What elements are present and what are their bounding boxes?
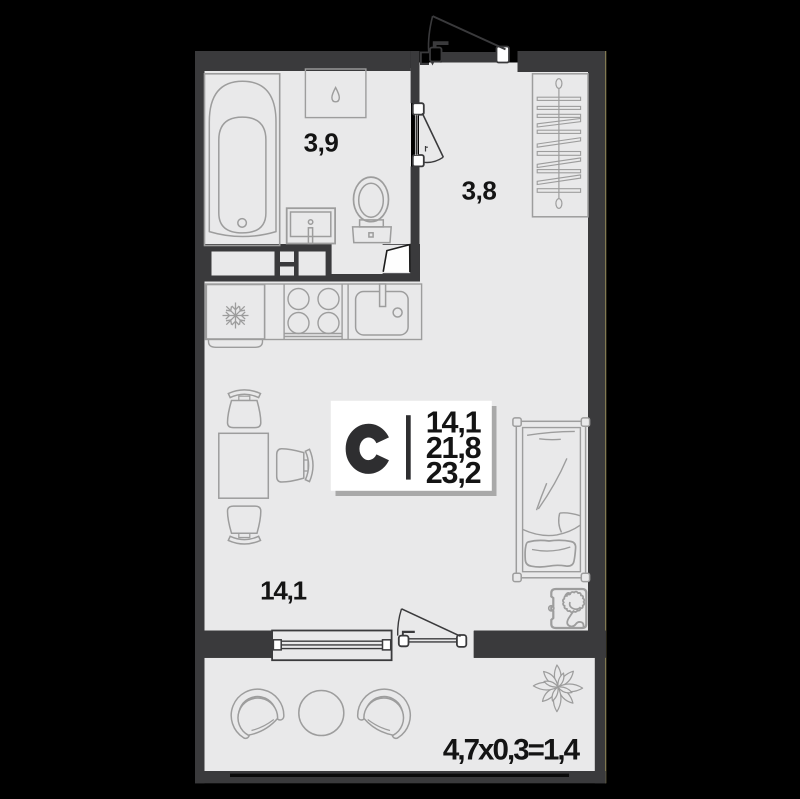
svg-text:3,9: 3,9 [304,128,339,158]
svg-text:23,2: 23,2 [426,456,481,490]
svg-text:3,8: 3,8 [462,175,497,205]
svg-text:4,7x0,3=1,4: 4,7x0,3=1,4 [443,734,581,767]
svg-text:14,1: 14,1 [260,575,307,605]
